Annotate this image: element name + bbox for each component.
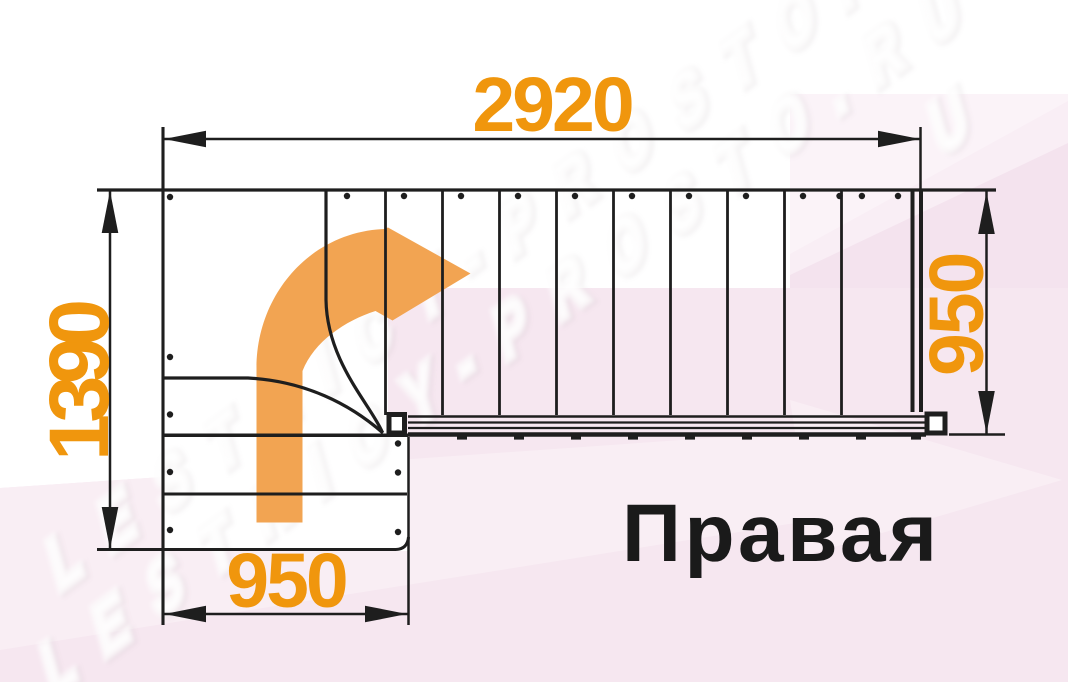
svg-text:950: 950 bbox=[914, 254, 1000, 376]
svg-text:950: 950 bbox=[226, 538, 346, 624]
svg-text:1390: 1390 bbox=[32, 302, 126, 461]
svg-text:Правая: Правая bbox=[622, 488, 940, 579]
svg-text:2920: 2920 bbox=[472, 62, 631, 148]
